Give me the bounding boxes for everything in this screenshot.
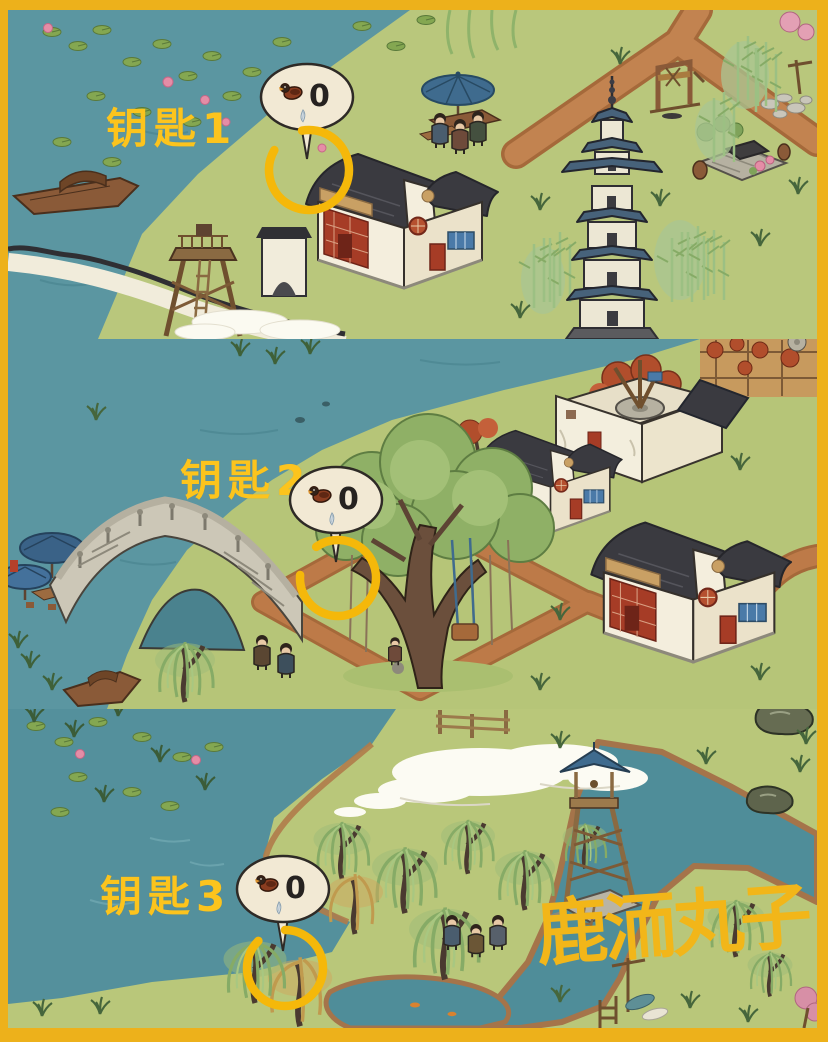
collect-count-2: 0 xyxy=(338,482,359,517)
key-circle-marker-3 xyxy=(239,922,331,1014)
map-panel-1 xyxy=(8,10,817,339)
collect-count-1: 0 xyxy=(309,79,330,114)
key-circle-marker-2 xyxy=(292,532,384,624)
collect-count-3: 0 xyxy=(285,871,306,906)
key-label-3: 钥匙3 xyxy=(100,876,231,918)
map-panel-3 xyxy=(8,709,817,1028)
map-panel-2 xyxy=(8,339,817,709)
key-circle-marker-1 xyxy=(261,122,357,218)
gold-frame: 钥匙1 钥匙2 钥匙3 0 0 0 鹿洏丸子 xyxy=(0,0,828,1042)
artist-signature: 鹿洏丸子 xyxy=(534,880,828,969)
key-label-1: 钥匙1 xyxy=(106,108,237,150)
